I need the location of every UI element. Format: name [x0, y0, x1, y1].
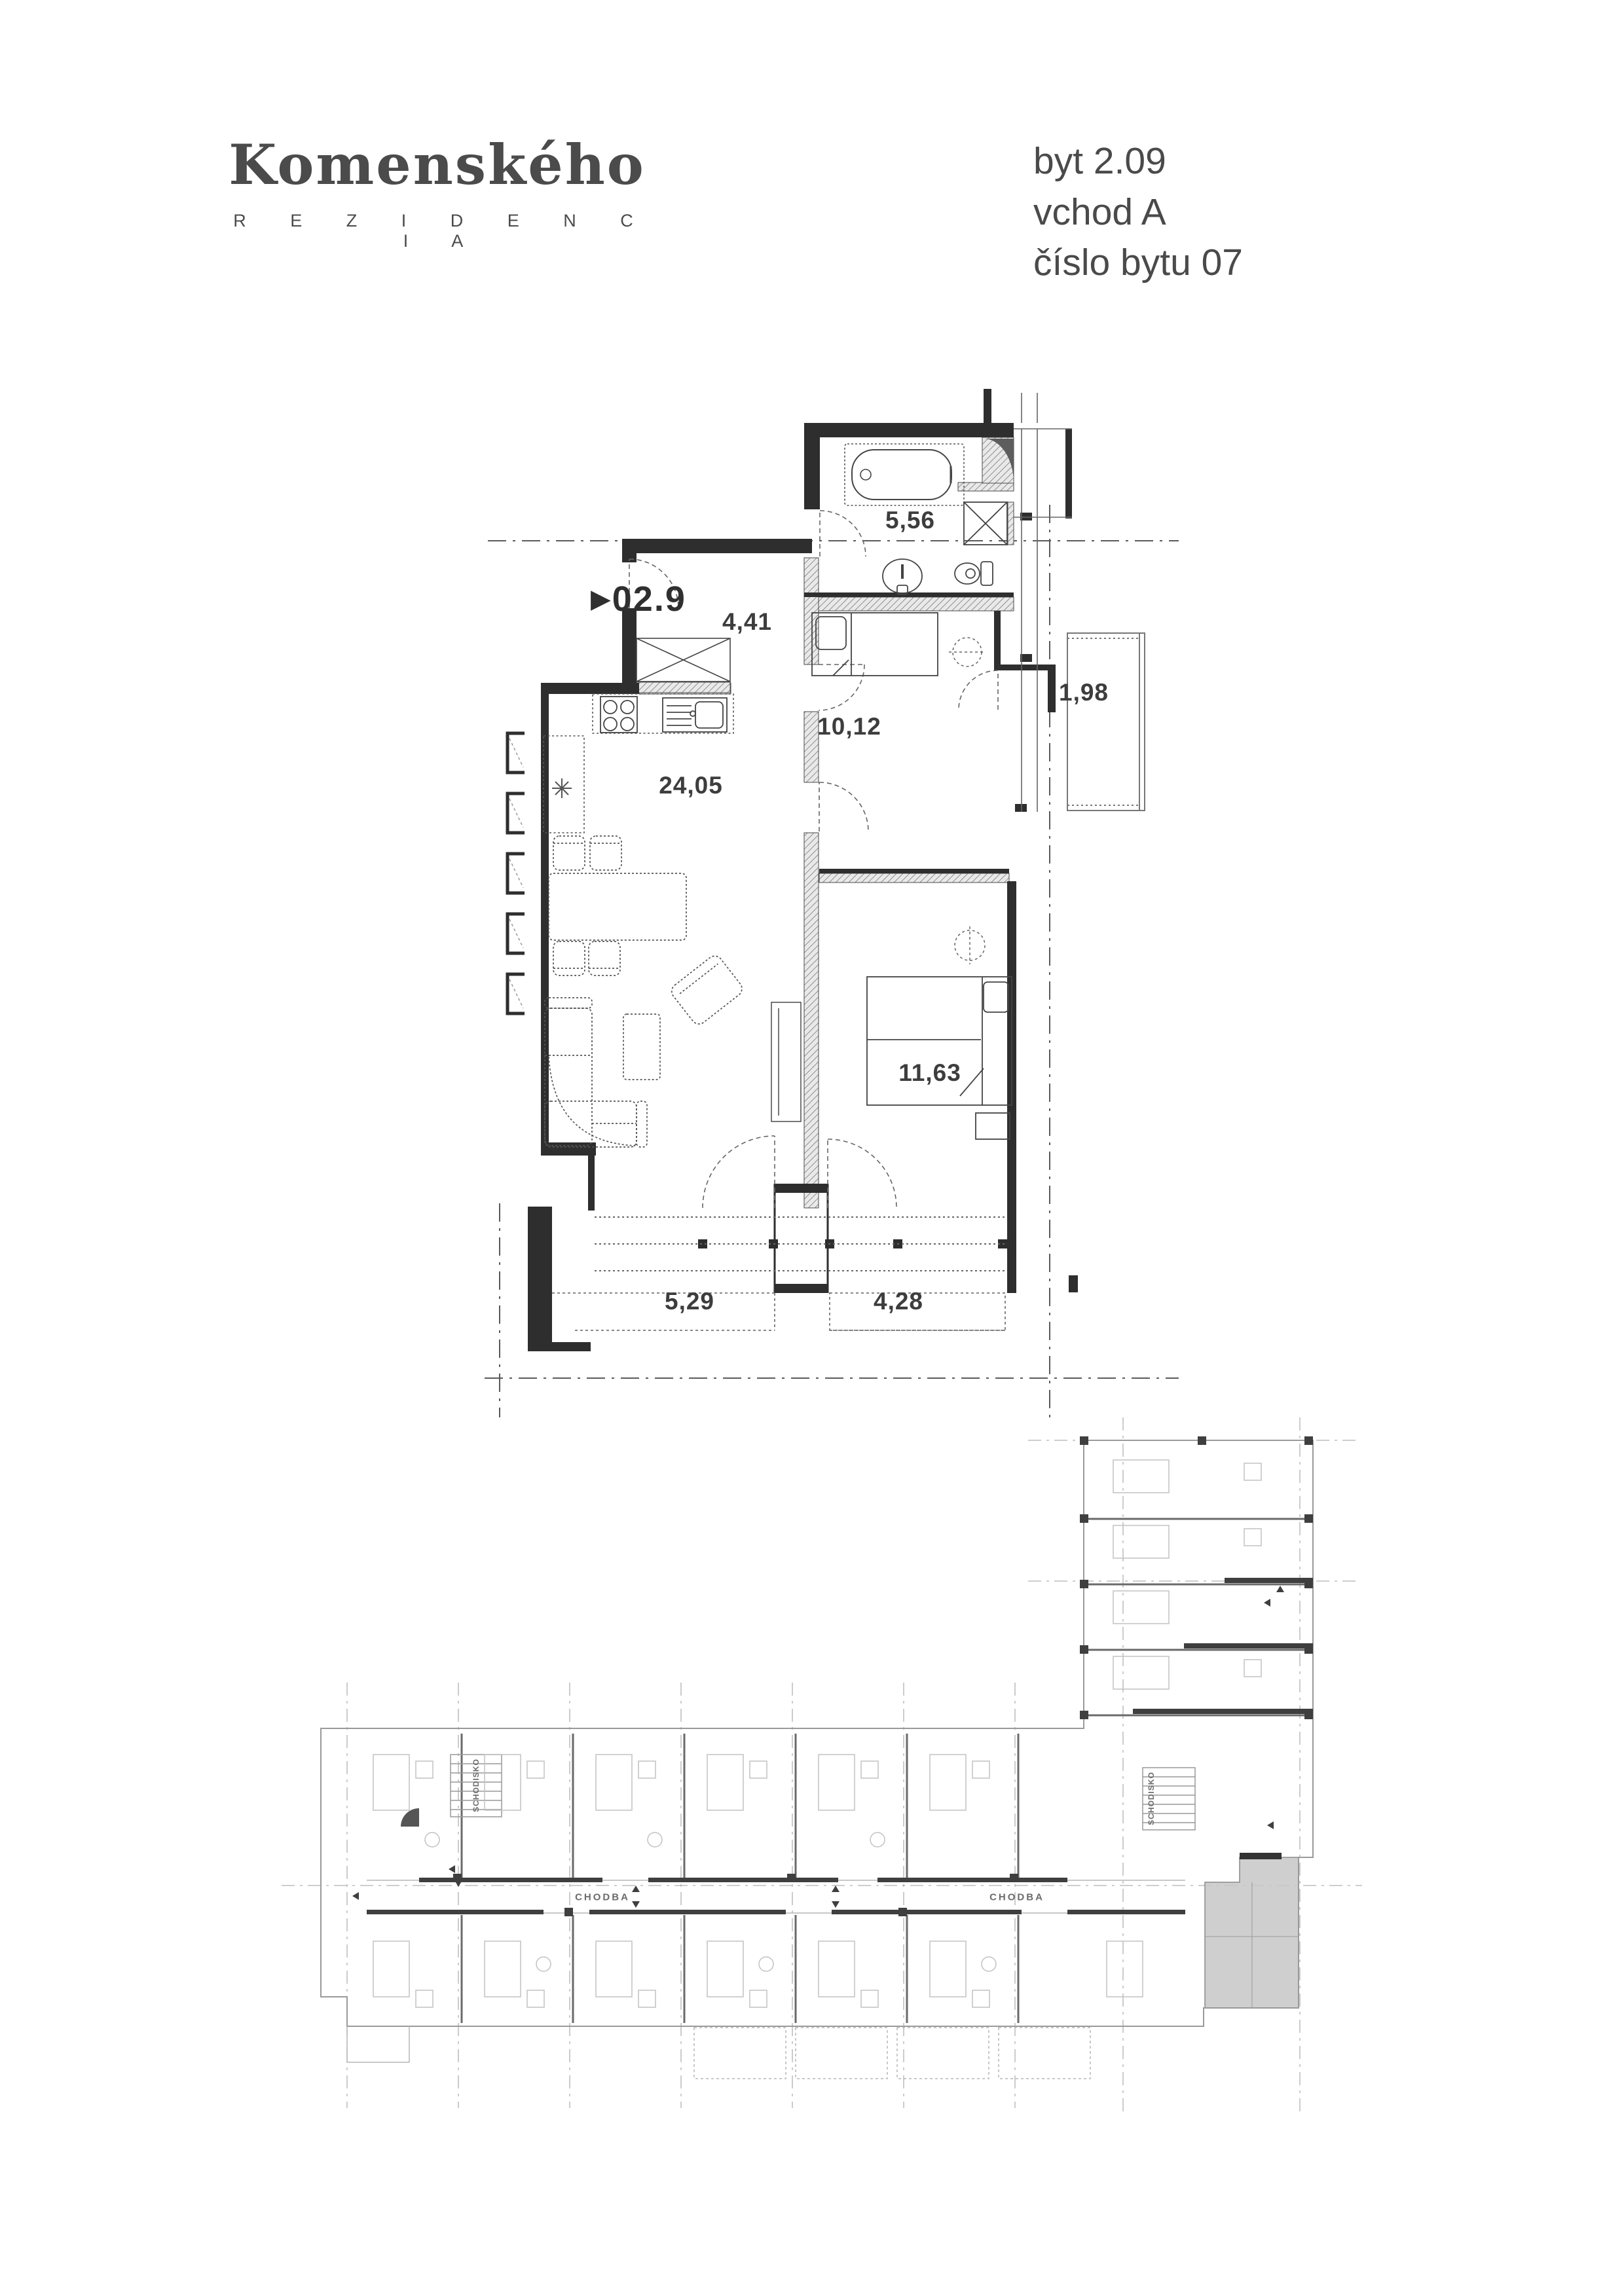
dining-table — [549, 836, 686, 975]
balcony-outline — [1067, 633, 1145, 811]
bed-double — [867, 977, 1012, 1139]
room-area-label-bathroom: 5,56 — [885, 507, 935, 534]
sofa — [545, 998, 647, 1147]
bathtub-icon — [845, 444, 964, 505]
building-outline — [321, 1440, 1313, 2026]
unit-number-label: ▶ 02.9 — [591, 579, 686, 619]
brochure-page: Komenského R E Z I D E N C I A byt 2.09 … — [0, 0, 1624, 2296]
ceiling-light-icons — [949, 638, 986, 964]
room-area-label-bedroom-2: 11,63 — [898, 1059, 961, 1087]
corridor-label-2: CHODBA — [989, 1892, 1044, 1903]
room-area-label-terrace-1: 5,29 — [665, 1288, 714, 1315]
overview-furniture — [373, 1460, 1261, 2007]
coffee-table — [623, 1014, 660, 1080]
staircase-label-1: SCHODISKO — [471, 1758, 481, 1812]
stair-landing-quadrant — [401, 1808, 419, 1827]
fridge-icon — [552, 778, 572, 798]
armchair — [669, 953, 745, 1027]
kitchen-counter — [544, 694, 733, 833]
unit-dividers — [462, 1519, 1310, 2023]
stove-icon — [600, 697, 637, 733]
room-area-label-bedroom-1: 10,12 — [817, 713, 881, 740]
wardrobe-icon — [637, 638, 730, 682]
direction-arrows — [352, 1586, 1284, 1908]
corridor-label-1: CHODBA — [575, 1892, 630, 1903]
room-area-label-terrace-2: 4,28 — [874, 1288, 923, 1315]
bed-single — [812, 613, 938, 676]
plan-canvas — [0, 0, 1624, 2296]
room-area-label-living-kitchen: 24,05 — [659, 772, 723, 799]
facade-pillars-left — [507, 733, 525, 1013]
terrace-pillar — [775, 1184, 828, 1293]
staircase-label-2: SCHODISKO — [1147, 1772, 1156, 1825]
toilet-icon — [955, 562, 993, 585]
wing-corridor-walls — [1133, 1578, 1313, 1714]
overview-floor-plan — [282, 1417, 1362, 2115]
unit-number: 02.9 — [612, 579, 686, 619]
room-area-label-hall: 4,41 — [722, 608, 772, 636]
entrance-marker-icon: ▶ — [591, 586, 611, 612]
tv-cabinet — [771, 1002, 801, 1121]
shower-icon — [964, 502, 1007, 545]
sink-icon — [883, 559, 922, 594]
main-floor-plan — [485, 389, 1179, 1417]
overview-axis-grid — [282, 1417, 1362, 2115]
terrace-outlines — [552, 1293, 1005, 1330]
kitchen-sink-icon — [663, 698, 727, 732]
corridor — [367, 1878, 1185, 1914]
room-area-label-balcony: 1,98 — [1059, 679, 1109, 706]
highlighted-apartment — [1205, 1853, 1299, 2008]
window-band-right — [1014, 393, 1072, 812]
terrace-glazing — [595, 1217, 1007, 1271]
